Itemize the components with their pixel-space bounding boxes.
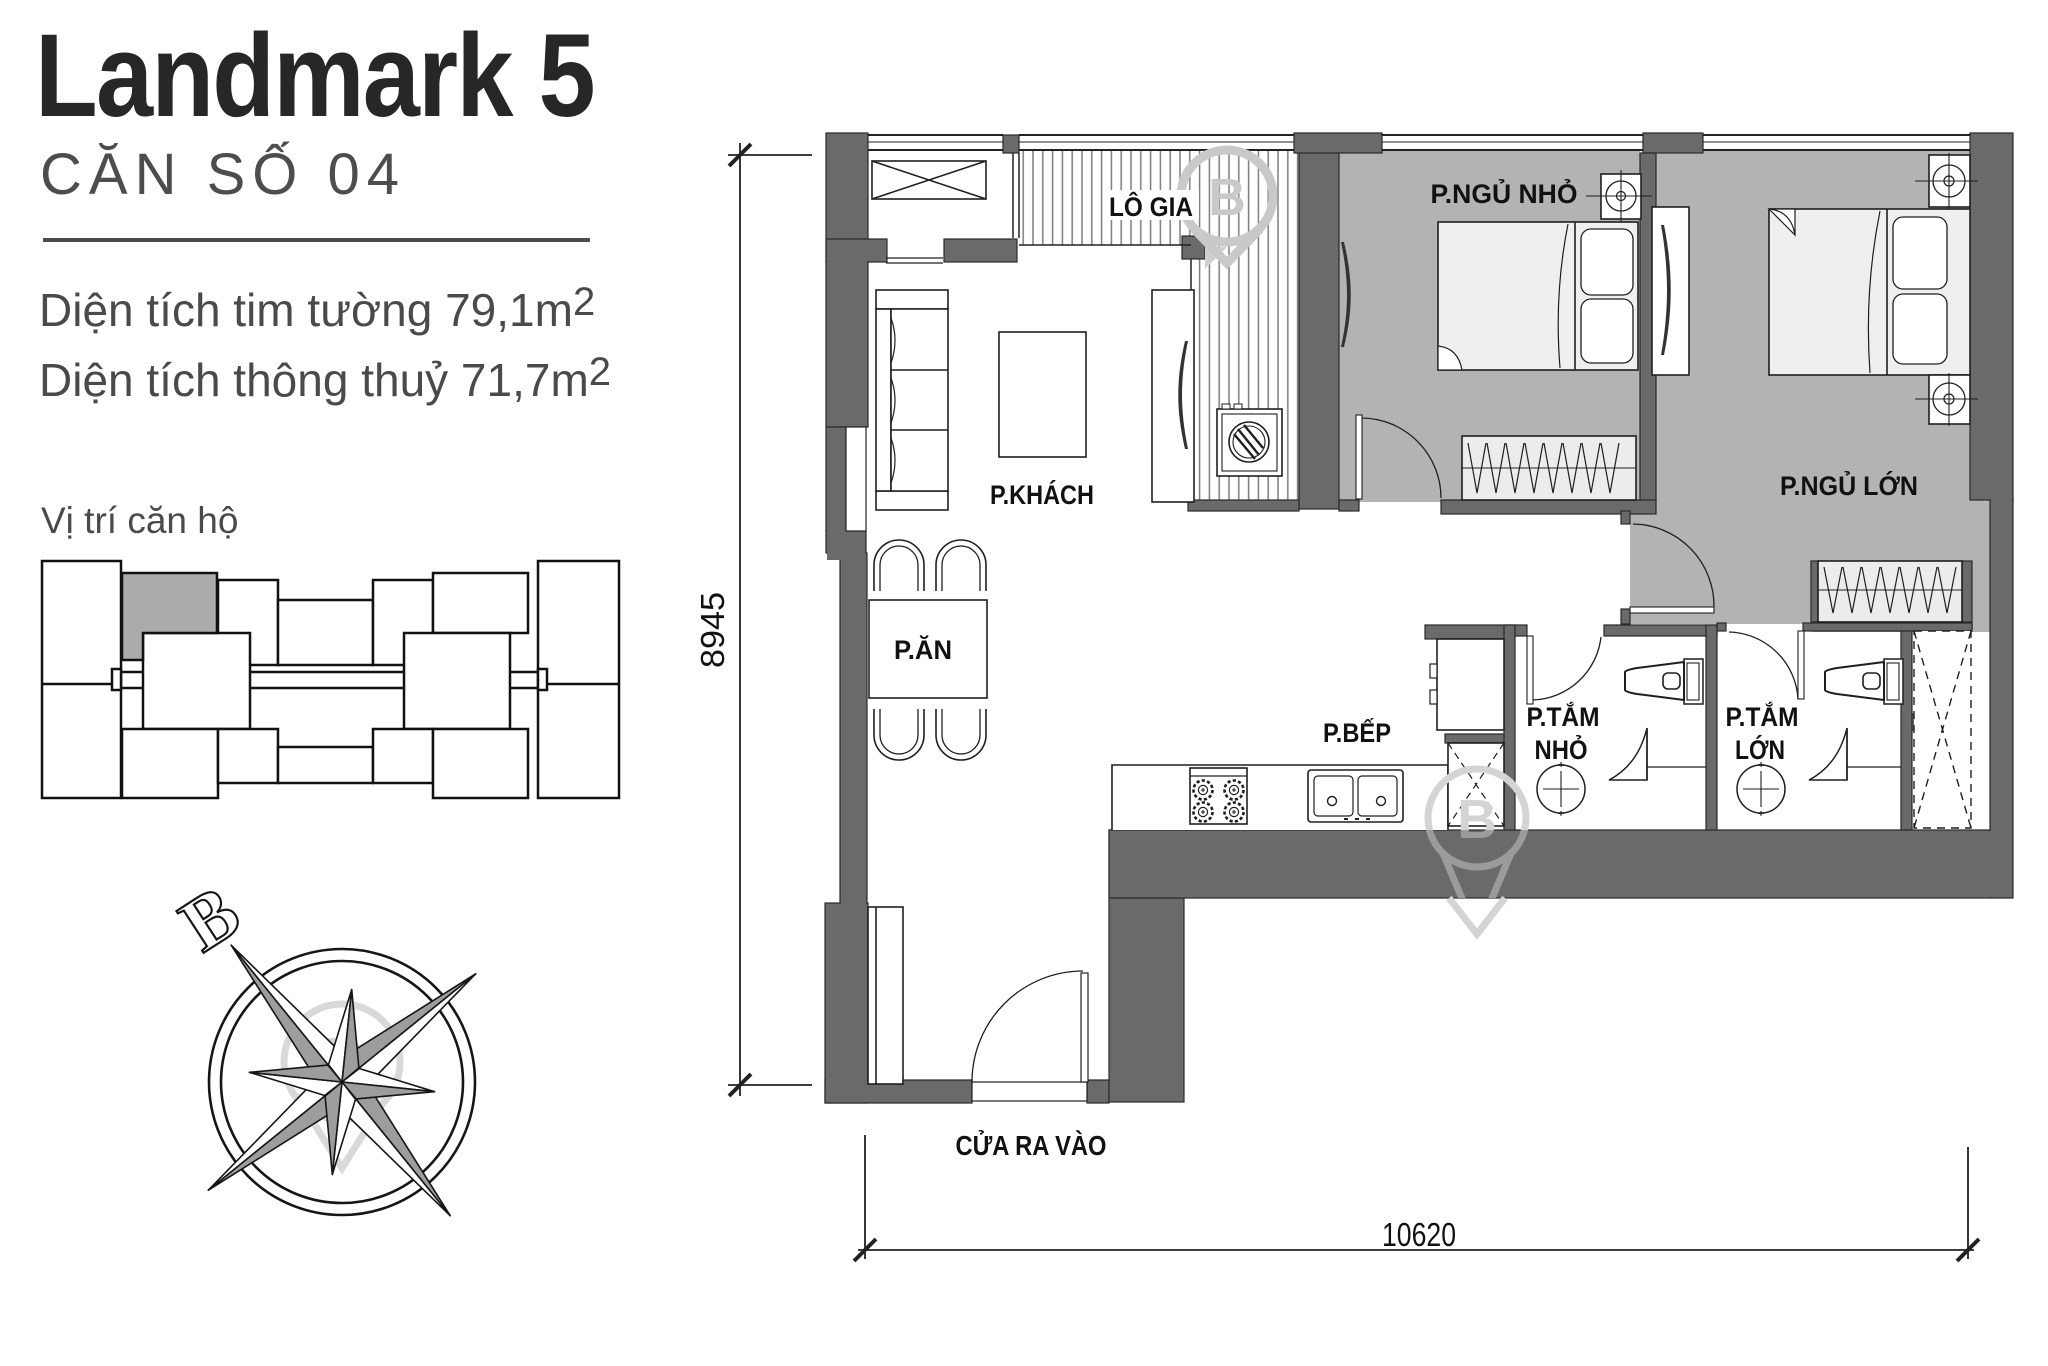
svg-text:10620: 10620 xyxy=(1382,1216,1456,1253)
svg-text:P.NGỦ LỚN: P.NGỦ LỚN xyxy=(1780,469,1918,501)
svg-text:P.TẮM: P.TẮM xyxy=(1726,701,1799,732)
svg-text:P.NGỦ NHỎ: P.NGỦ NHỎ xyxy=(1431,177,1578,209)
svg-text:P.KHÁCH: P.KHÁCH xyxy=(990,479,1094,510)
svg-text:LÔ GIA: LÔ GIA xyxy=(1109,191,1193,222)
svg-text:P.BẾP: P.BẾP xyxy=(1323,717,1391,748)
svg-text:NHỎ: NHỎ xyxy=(1535,733,1588,765)
svg-text:8945: 8945 xyxy=(694,592,731,668)
svg-text:B: B xyxy=(166,870,254,968)
svg-text:B: B xyxy=(1208,169,1246,227)
svg-text:P.TẮM: P.TẮM xyxy=(1527,701,1600,732)
svg-text:CỬA RA VÀO: CỬA RA VÀO xyxy=(956,1129,1107,1161)
svg-text:LỚN: LỚN xyxy=(1735,734,1785,765)
svg-text:P.ĂN: P.ĂN xyxy=(894,634,952,665)
